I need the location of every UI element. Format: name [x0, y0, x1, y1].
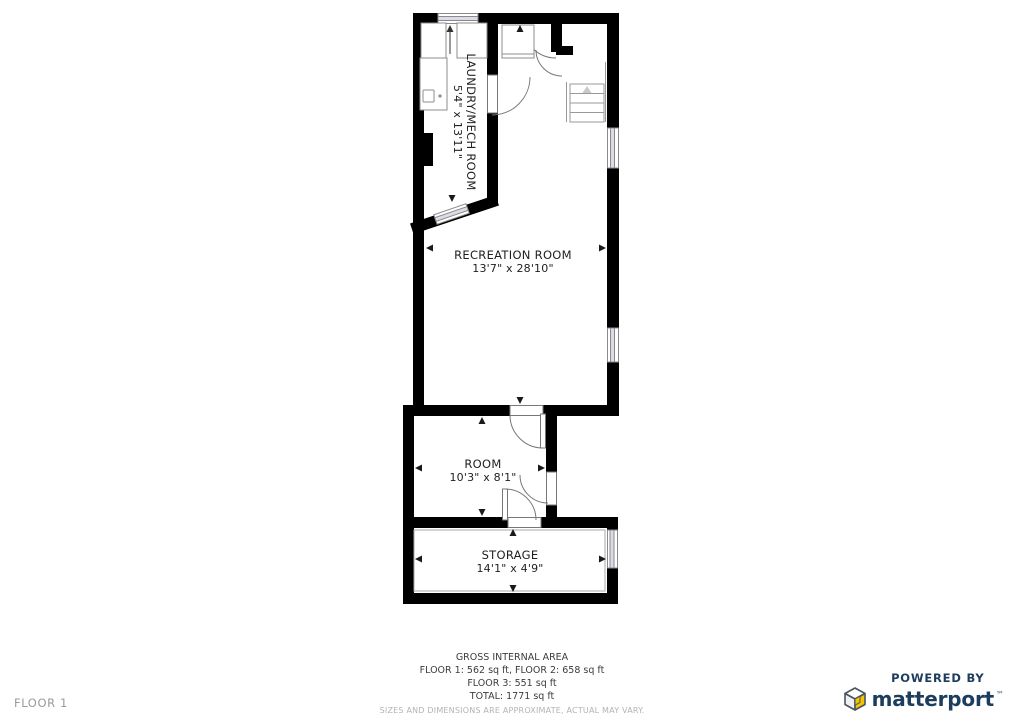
door-room-to-storage [503, 489, 542, 528]
gross-area-line1: FLOOR 1: 562 sq ft, FLOOR 2: 658 sq ft [380, 664, 645, 677]
storage-room-name: STORAGE [476, 548, 543, 562]
powered-by-label: POWERED BY [861, 671, 984, 685]
storage-room-label: STORAGE 14'1" x 4'9" [476, 548, 543, 576]
floorplan-page: LAUNDRY/MECH ROOM 5'4" x 13'11" RECREATI… [0, 0, 1024, 724]
gross-area-line3: TOTAL: 1771 sq ft [380, 690, 645, 703]
window-top [438, 14, 478, 24]
floor-plan-drawing [0, 0, 1024, 724]
gross-internal-area-block: GROSS INTERNAL AREA FLOOR 1: 562 sq ft, … [380, 651, 645, 717]
laundry-room-label: LAUNDRY/MECH ROOM 5'4" x 13'11" [450, 53, 478, 190]
door-laundry-to-hall [488, 75, 531, 115]
window-storage-right [608, 530, 618, 568]
gross-area-title: GROSS INTERNAL AREA [380, 651, 645, 664]
door-room-right [520, 472, 557, 505]
matterport-branding: POWERED BY matterport ™ [842, 671, 1004, 712]
trademark-symbol: ™ [996, 690, 1004, 699]
storage-room-dims: 14'1" x 4'9" [476, 562, 543, 576]
gross-area-line2: FLOOR 3: 551 sq ft [380, 677, 645, 690]
laundry-room-name: LAUNDRY/MECH ROOM [464, 53, 478, 190]
dimensions-disclaimer: SIZES AND DIMENSIONS ARE APPROXIMATE, AC… [380, 704, 645, 717]
room-name: ROOM [449, 457, 516, 471]
recreation-room-dims: 13'7" x 28'10" [454, 262, 572, 276]
washer-fixture [421, 23, 446, 58]
door-rec-to-room [510, 406, 546, 449]
laundry-room-dims: 5'4" x 13'11" [450, 53, 464, 190]
recreation-room-name: RECREATION ROOM [454, 248, 572, 262]
window-right-lower [608, 328, 619, 362]
laundry-sink-counter [420, 58, 447, 110]
window-right-upper [608, 128, 619, 168]
room-label: ROOM 10'3" x 8'1" [449, 457, 516, 485]
room-dims: 10'3" x 8'1" [449, 471, 516, 485]
stairs [567, 62, 606, 122]
matterport-cube-icon [842, 686, 868, 712]
recreation-room-label: RECREATION ROOM 13'7" x 28'10" [454, 248, 572, 276]
matterport-wordmark: matterport [872, 687, 994, 711]
floor-number-label: FLOOR 1 [14, 696, 68, 710]
laundry-dimension-arrow [447, 25, 454, 54]
